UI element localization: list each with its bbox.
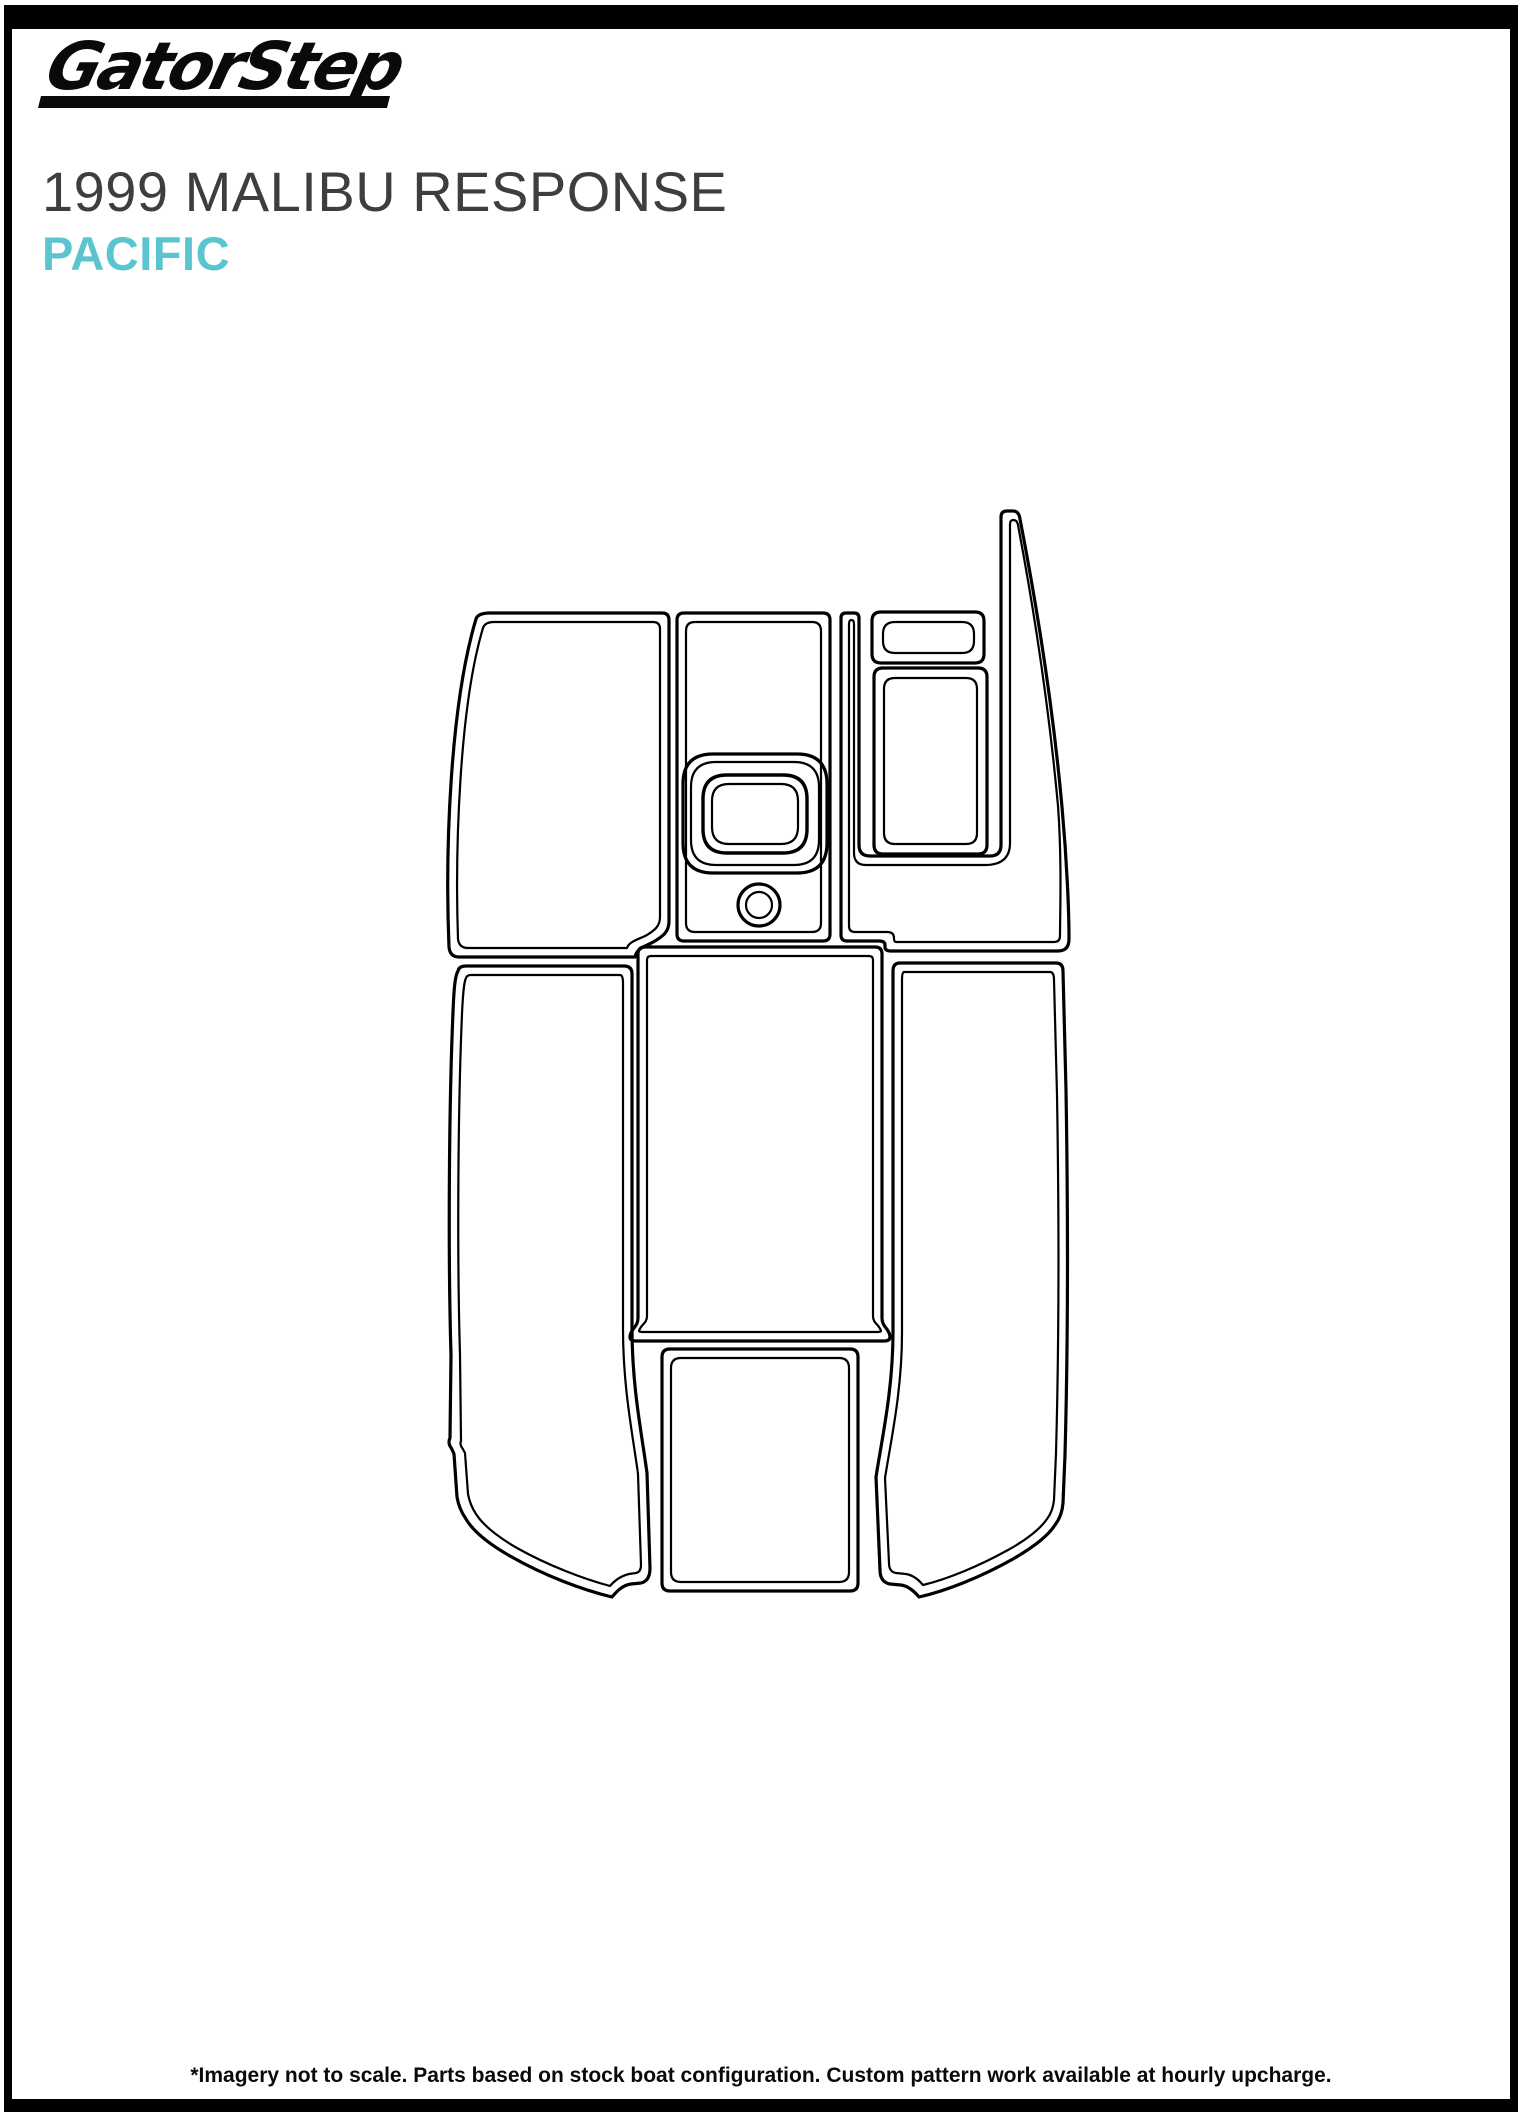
pad-seat-top-outline bbox=[872, 612, 984, 663]
pad-seat-front-inner-line bbox=[884, 678, 977, 844]
hatch-hole-inner-line bbox=[712, 784, 798, 844]
pad-port-side-inner-line bbox=[458, 975, 641, 1586]
pad-engine-hatch-inner-line bbox=[671, 1358, 849, 1582]
deck-pad-template-diagram bbox=[0, 0, 1522, 2120]
pad-outlines-outer bbox=[448, 511, 1069, 1597]
pad-cockpit-floor-inner-line bbox=[639, 956, 881, 1332]
spec-sheet-page: GatorStep 1999 MALIBU RESPONSE PACIFIC bbox=[0, 0, 1522, 2120]
ski-pylon-circle-inner bbox=[746, 892, 772, 918]
pad-bow-left-outline bbox=[448, 613, 669, 957]
pad-starboard-side-inner-line bbox=[885, 972, 1058, 1585]
pad-console-gunwale-inner-line bbox=[849, 520, 1061, 942]
pad-seat-top-inner-line bbox=[883, 622, 974, 653]
pad-seat-front-outline bbox=[874, 668, 987, 854]
pad-bow-left-inner-line bbox=[457, 622, 660, 948]
pad-port-side-outline bbox=[449, 966, 650, 1597]
pad-cockpit-floor-outline bbox=[630, 947, 890, 1341]
footer-disclaimer: *Imagery not to scale. Parts based on st… bbox=[0, 2064, 1522, 2088]
pad-starboard-side-outline bbox=[876, 963, 1067, 1597]
pad-engine-hatch-outline bbox=[662, 1349, 858, 1591]
ski-pylon-circle-outer bbox=[738, 884, 780, 926]
pad-walkthrough-outline bbox=[677, 613, 830, 941]
